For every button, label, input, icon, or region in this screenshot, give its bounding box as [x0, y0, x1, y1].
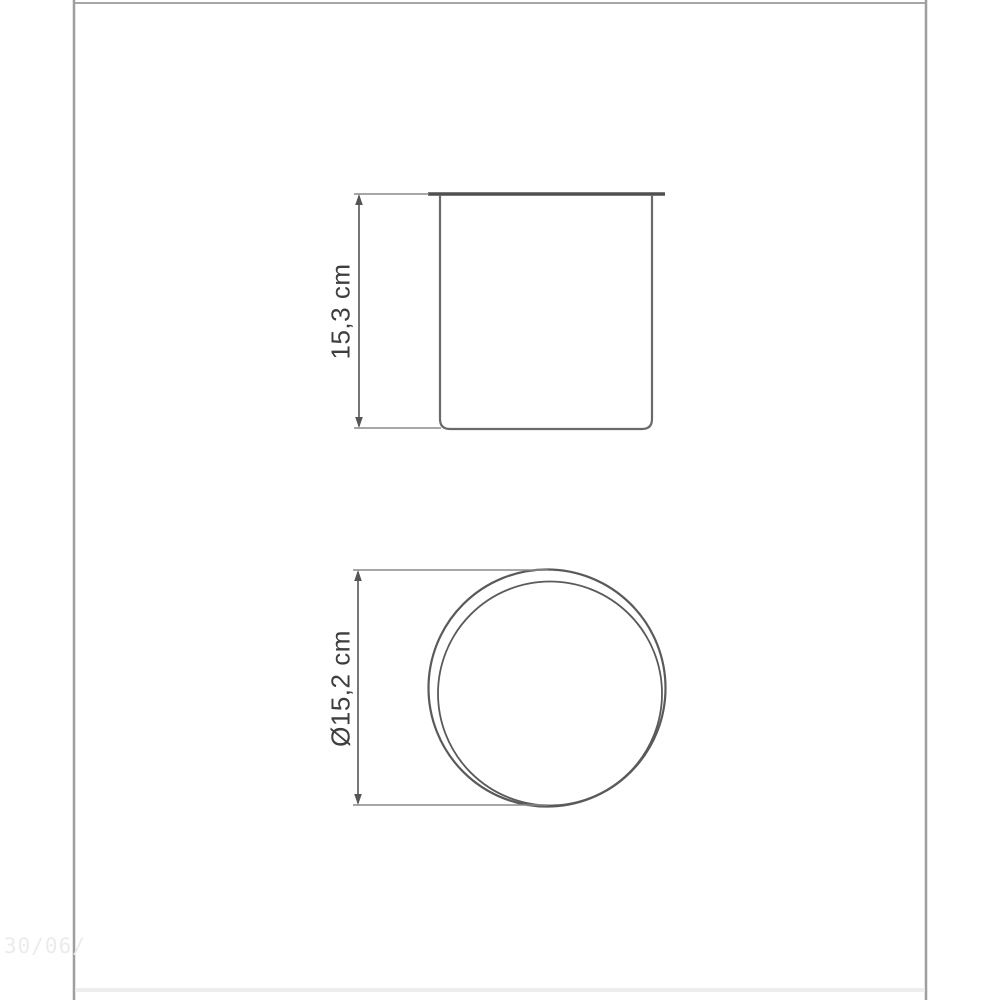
diameter-dimension-label: Ø15,2 cm [326, 599, 357, 779]
top-view-arrow-down-icon [354, 794, 362, 805]
top-view-inner-circle [438, 582, 662, 806]
product-dimension-image: 15,3 cm Ø15,2 cm 30/06/ 2021 / 00:34: 10 [0, 0, 1000, 1000]
top-view-arrow-up-icon [354, 570, 362, 581]
side-view-arrow-up-icon [355, 194, 363, 205]
side-view [354, 194, 665, 429]
height-dimension-label: 15,3 cm [326, 232, 357, 392]
frame-lines [74, 0, 926, 1000]
top-view [353, 570, 666, 807]
timestamp-watermark: 30/06/ 2021 / 00:34: 10 [4, 884, 86, 1000]
side-view-arrow-down-icon [355, 417, 363, 428]
side-view-body-outline [440, 195, 652, 429]
dimension-drawing-svg [0, 0, 1000, 1000]
watermark-line: 30/06/ [4, 934, 86, 959]
